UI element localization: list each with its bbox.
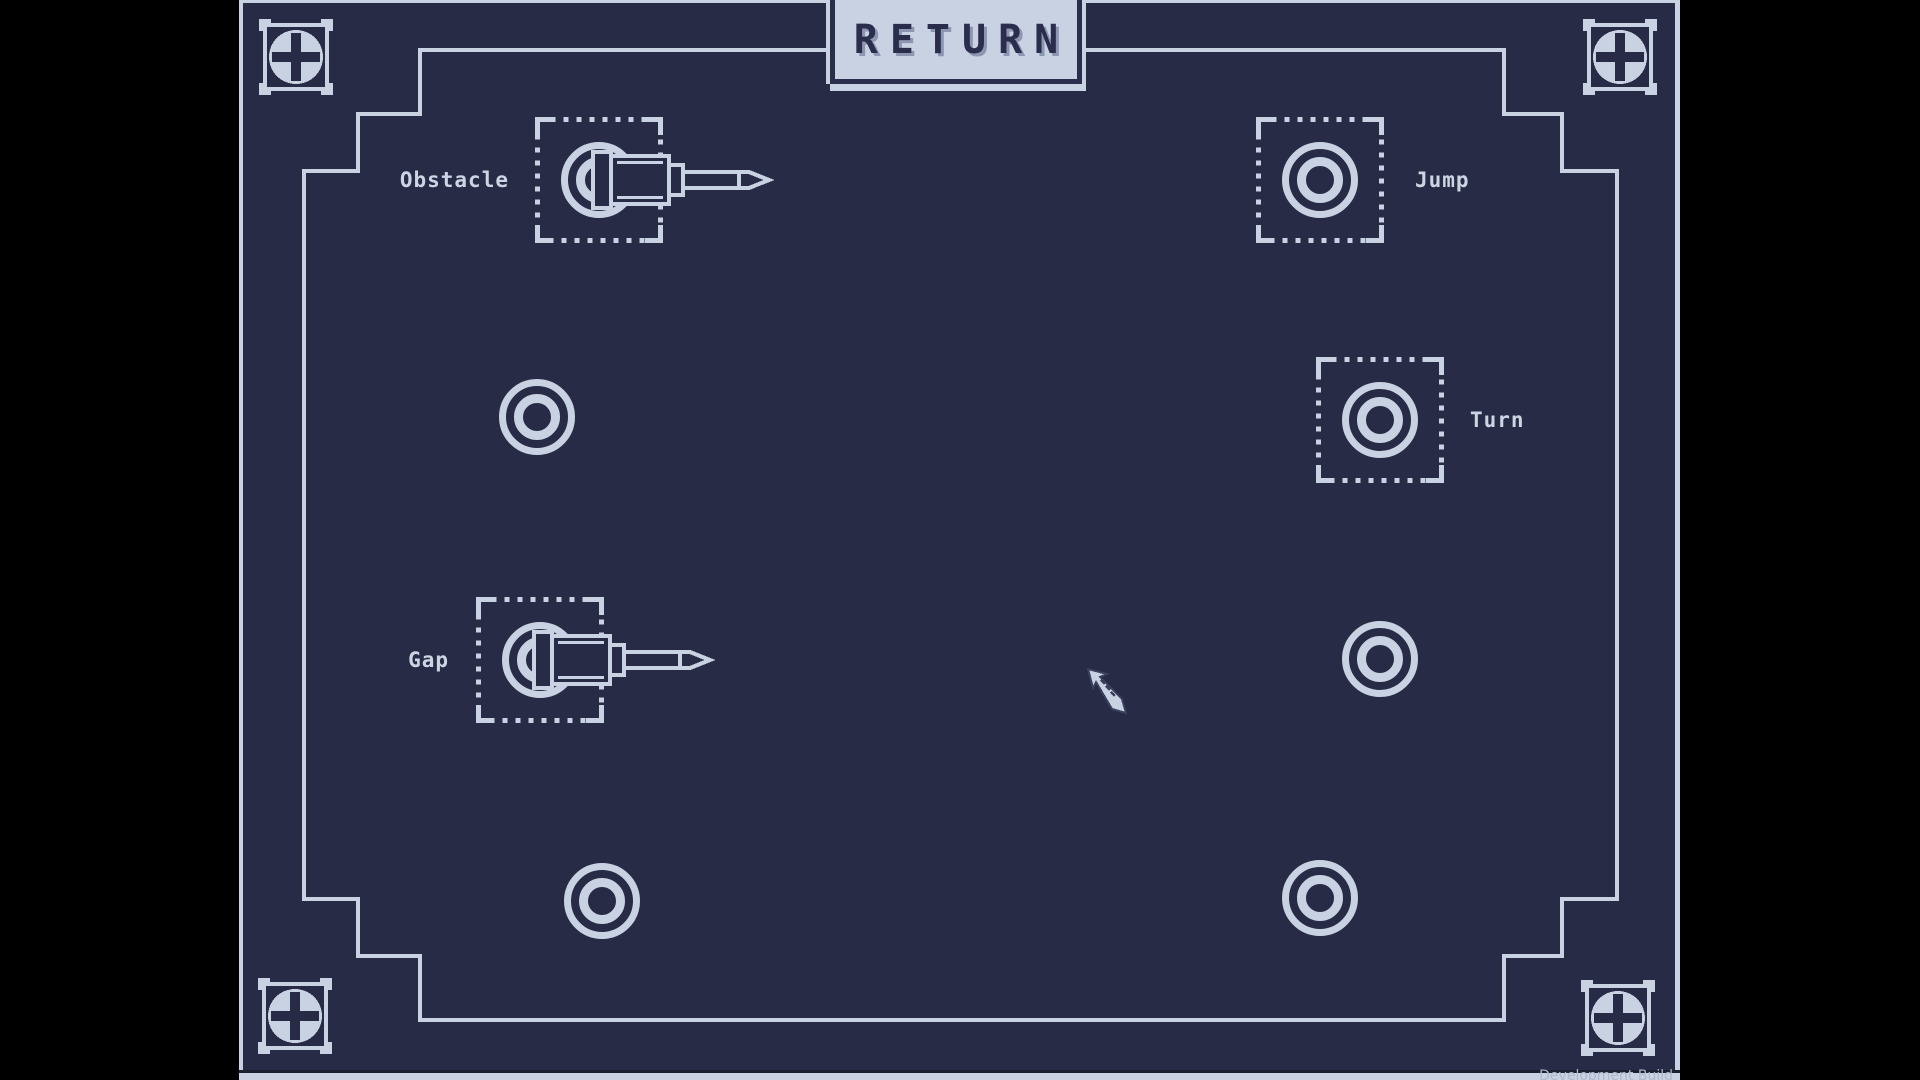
cable-plug-icon-obstacle[interactable]: [591, 144, 777, 216]
cable-plug-icon-gap[interactable]: [532, 624, 718, 696]
screw-icon-top-right: [1582, 18, 1658, 96]
socket-label-obstacle: Obstacle: [389, 166, 509, 194]
socket-hole: [1297, 157, 1343, 203]
screw-icon-top-left: [258, 18, 334, 96]
socket-middle-left[interactable]: [499, 379, 575, 455]
socket-turn[interactable]: [1342, 382, 1418, 458]
socket-label-turn: Turn: [1470, 406, 1525, 434]
screen: RETURN: [0, 0, 1920, 1080]
panel-background: RETURN: [239, 0, 1680, 1080]
screw-icon-bottom-left: [257, 977, 333, 1055]
screw-icon-bottom-right: [1580, 979, 1656, 1057]
socket-label-gap: Gap: [359, 646, 449, 674]
return-button[interactable]: RETURN: [830, 0, 1082, 84]
socket-hole: [1357, 397, 1403, 443]
socket-hole: [1357, 636, 1403, 682]
socket-hole: [1297, 875, 1343, 921]
return-button-label: RETURN: [842, 17, 1071, 63]
cursor-arrow-icon: [1085, 666, 1131, 718]
socket-hole: [514, 394, 560, 440]
socket-bottom-left[interactable]: [564, 863, 640, 939]
inner-border-outline: [239, 0, 1680, 1080]
socket-jump[interactable]: [1282, 142, 1358, 218]
socket-middle-right[interactable]: [1342, 621, 1418, 697]
socket-hole: [579, 878, 625, 924]
socket-bottom-right[interactable]: [1282, 860, 1358, 936]
socket-label-jump: Jump: [1415, 166, 1470, 194]
development-build-watermark: Development Build: [1539, 1068, 1673, 1080]
